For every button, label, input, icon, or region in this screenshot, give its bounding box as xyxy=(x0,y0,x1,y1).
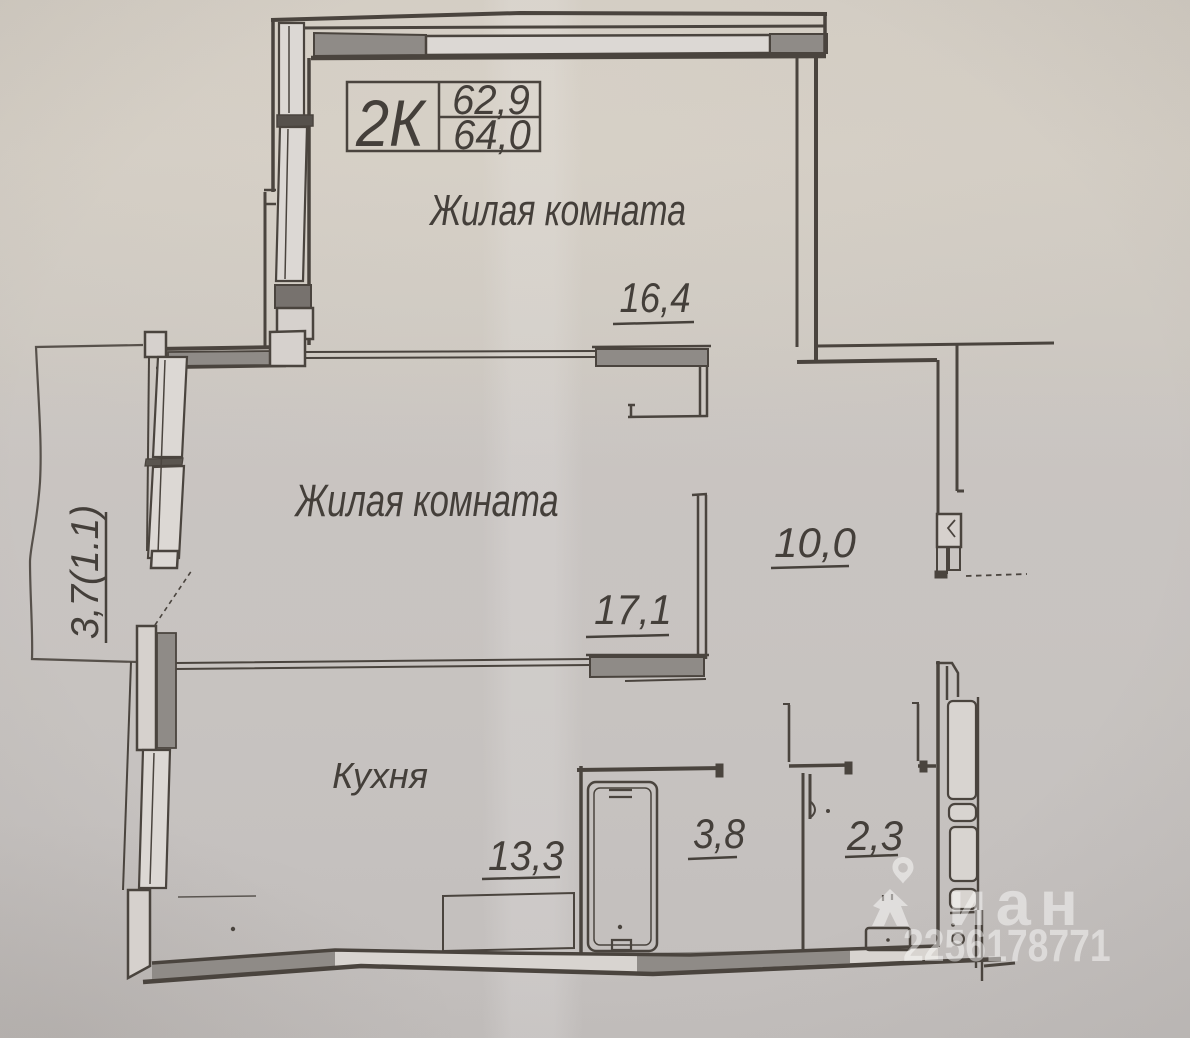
svg-text:2,3: 2,3 xyxy=(846,812,903,859)
svg-text:17,1: 17,1 xyxy=(594,586,672,633)
svg-text:2256178771: 2256178771 xyxy=(903,921,1111,971)
svg-text:Жилая комната: Жилая комната xyxy=(428,187,686,235)
svg-text:3,8: 3,8 xyxy=(693,811,745,857)
svg-text:Жилая комната: Жилая комната xyxy=(294,476,559,526)
svg-text:3,7(1.1): 3,7(1.1) xyxy=(64,505,107,639)
svg-text:64,0: 64,0 xyxy=(453,111,531,158)
svg-text:16,4: 16,4 xyxy=(619,275,690,322)
svg-text:Кухня: Кухня xyxy=(332,755,428,796)
svg-text:2К: 2К xyxy=(355,87,427,161)
svg-text:13,3: 13,3 xyxy=(488,832,564,880)
svg-text:10,0: 10,0 xyxy=(774,519,856,566)
